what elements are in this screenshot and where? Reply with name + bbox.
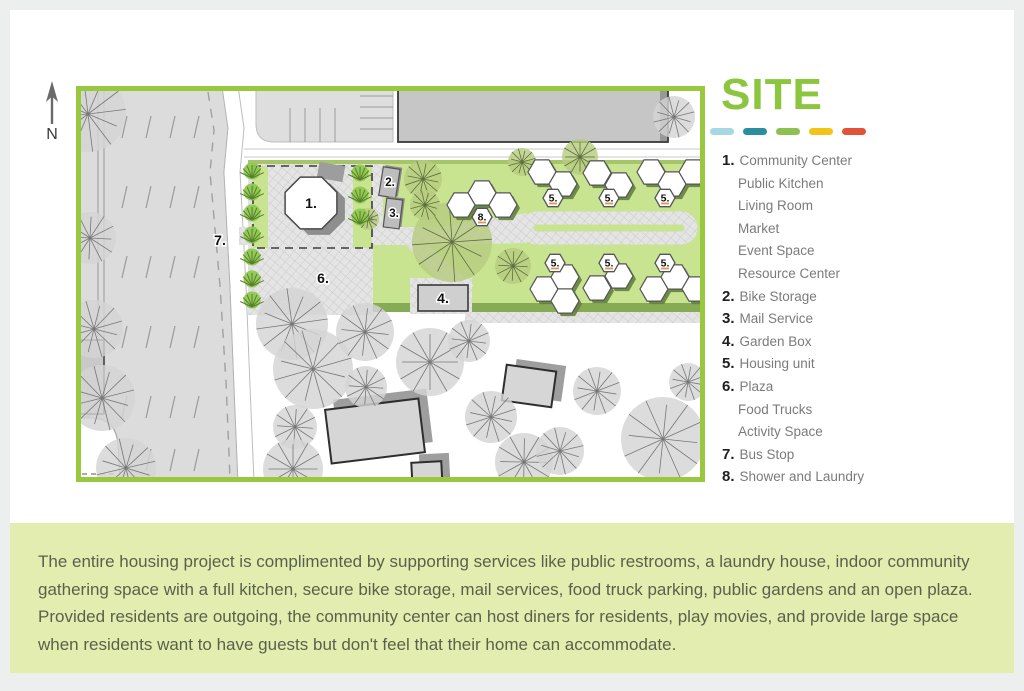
marker-garden-box: 4. xyxy=(437,290,449,306)
legend-item-number: 1. xyxy=(722,152,735,169)
legend-subitem: Activity Space xyxy=(738,421,1024,444)
legend-item: 4.Garden Box xyxy=(722,331,1024,354)
legend-item: 1.Community Center xyxy=(722,150,1024,173)
north-label: N xyxy=(38,126,66,144)
legend-item-label: Mail Service xyxy=(740,311,814,326)
legend-subitem: Event Space xyxy=(738,240,1024,263)
legend-subitem: Resource Center xyxy=(738,263,1024,286)
tree-icon xyxy=(573,367,621,415)
site-plan-drawing: 5.5.5.5.5.5.8. 1. 2. 3. 4. 6. 7. xyxy=(76,86,705,482)
marker-bike-storage: 2. xyxy=(385,177,395,189)
tree-icon xyxy=(345,366,387,408)
legend-item-label: Bike Storage xyxy=(740,289,817,304)
marker-housing-unit: 5. xyxy=(661,193,670,205)
legend-list: 1.Community CenterPublic KitchenLiving R… xyxy=(722,150,1024,489)
legend-subitem: Market xyxy=(738,218,1024,241)
legend-item-number: 6. xyxy=(722,378,735,395)
marker-bus-stop: 7. xyxy=(214,232,226,248)
legend-title: SITE xyxy=(721,72,1024,118)
legend-item-number: 3. xyxy=(722,310,735,327)
legend-item-number: 5. xyxy=(722,355,735,372)
marker-housing-unit: 5. xyxy=(661,258,670,270)
legend-item-number: 8. xyxy=(722,468,735,485)
legend-subitem: Food Trucks xyxy=(738,399,1024,422)
description-panel: The entire housing project is compliment… xyxy=(10,523,1014,673)
legend-item-label: Shower and Laundry xyxy=(740,469,865,484)
marker-housing-unit: 5. xyxy=(551,258,560,270)
legend-item: 5.Housing unit xyxy=(722,353,1024,376)
legend-item: 6.Plaza xyxy=(722,376,1024,399)
legend-swatch xyxy=(842,128,866,135)
marker-mail-service: 3. xyxy=(389,208,399,220)
marker-community-center: 1. xyxy=(305,195,317,211)
legend: SITE 1.Community CenterPublic KitchenLiv… xyxy=(710,72,1024,489)
parking-lot xyxy=(256,86,393,142)
tree-icon xyxy=(448,320,490,362)
legend-item-label: Bus Stop xyxy=(740,447,795,462)
paved-walk xyxy=(465,312,703,323)
legend-subitem: Living Room xyxy=(738,195,1024,218)
legend-item-number: 7. xyxy=(722,446,735,463)
tree-icon xyxy=(495,248,531,284)
marker-housing-unit: 5. xyxy=(605,258,614,270)
legend-item: 2.Bike Storage xyxy=(722,286,1024,309)
marker-housing-unit: 5. xyxy=(605,193,614,205)
neighbor-building xyxy=(398,88,668,142)
legend-item-label: Housing unit xyxy=(740,356,815,371)
marker-plaza: 6. xyxy=(317,270,329,286)
legend-item-number: 2. xyxy=(722,288,735,305)
marker-housing-unit: 5. xyxy=(549,193,558,205)
legend-colorbar xyxy=(710,128,1024,136)
legend-item-number: 4. xyxy=(722,333,735,350)
tree-icon xyxy=(621,397,705,481)
marker-shower-laundry: 8. xyxy=(478,212,487,224)
tree-icon xyxy=(465,391,517,443)
description-text: The entire housing project is compliment… xyxy=(10,523,1014,658)
legend-item-label: Community Center xyxy=(740,153,853,168)
legend-item-label: Plaza xyxy=(740,379,774,394)
legend-item: 7.Bus Stop xyxy=(722,444,1024,467)
tree-icon xyxy=(336,303,394,361)
tree-icon xyxy=(536,427,584,475)
legend-item-label: Garden Box xyxy=(740,334,812,349)
legend-swatch xyxy=(776,128,800,135)
legend-swatch xyxy=(743,128,767,135)
legend-swatch xyxy=(710,128,734,135)
site-plan: 5.5.5.5.5.5.8. 1. 2. 3. 4. 6. 7. xyxy=(76,86,705,482)
content-card: N xyxy=(10,10,1014,523)
tree-icon xyxy=(410,190,440,220)
legend-subitem: Public Kitchen xyxy=(738,173,1024,196)
legend-item: 8.Shower and Laundry xyxy=(722,466,1024,489)
legend-item: 3.Mail Service xyxy=(722,308,1024,331)
tree-icon xyxy=(653,96,695,138)
legend-swatch xyxy=(809,128,833,135)
north-arrow-icon xyxy=(38,80,66,126)
